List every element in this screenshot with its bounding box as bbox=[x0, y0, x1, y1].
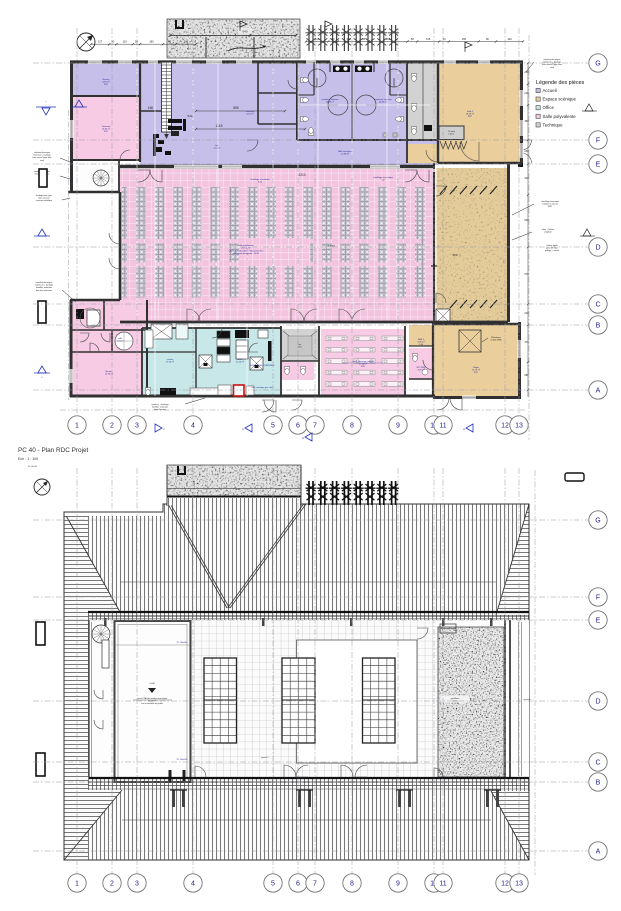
svg-text:6: 6 bbox=[296, 422, 300, 429]
svg-text:Technique: Technique bbox=[543, 122, 564, 127]
svg-text:140: 140 bbox=[507, 37, 512, 41]
svg-text:PC 40 - Plan RDC Projet: PC 40 - Plan RDC Projet bbox=[18, 447, 89, 454]
svg-text:C: C bbox=[595, 759, 600, 766]
svg-text:115: 115 bbox=[123, 40, 128, 44]
svg-text:+6.80: +6.80 bbox=[149, 683, 155, 685]
svg-text:26.35 m²: 26.35 m² bbox=[466, 113, 475, 116]
svg-text:extérieure + bardage: extérieure + bardage bbox=[33, 154, 51, 157]
svg-text:520: 520 bbox=[524, 219, 529, 222]
svg-text:D: D bbox=[595, 698, 600, 705]
svg-text:640: 640 bbox=[187, 114, 192, 118]
svg-text:mobile PMR: mobile PMR bbox=[491, 340, 502, 342]
svg-text:Accueil: Accueil bbox=[543, 88, 557, 93]
svg-text:115: 115 bbox=[426, 37, 431, 41]
svg-text:affect. max du public : 325 pe: affect. max du public : 325 personnes bbox=[229, 249, 264, 252]
svg-text:8: 8 bbox=[350, 880, 354, 887]
svg-text:C: C bbox=[595, 301, 600, 308]
svg-text:A: A bbox=[596, 387, 601, 394]
svg-text:280: 280 bbox=[524, 374, 529, 377]
svg-text:lamelles verticales: lamelles verticales bbox=[36, 286, 52, 289]
svg-text:salle polyvalente: salle polyvalente bbox=[238, 244, 254, 247]
svg-text:bardage bois (type: bardage bois (type bbox=[36, 194, 52, 197]
svg-text:PL 140x140: PL 140x140 bbox=[177, 759, 188, 761]
svg-text:2: 2 bbox=[110, 422, 114, 429]
svg-text:bois des montants: bois des montants bbox=[36, 289, 52, 292]
svg-text:210: 210 bbox=[524, 71, 529, 74]
svg-text:11: 11 bbox=[439, 880, 446, 887]
svg-text:1: 1 bbox=[75, 422, 79, 429]
svg-text:isolation thermique: isolation thermique bbox=[544, 58, 562, 61]
svg-text:ossature + bardage: ossature + bardage bbox=[151, 403, 169, 406]
svg-text:3.70 m²: 3.70 m² bbox=[417, 369, 424, 372]
svg-text:extérieure + bardage: extérieure + bardage bbox=[35, 284, 54, 287]
svg-text:6: 6 bbox=[296, 880, 300, 887]
svg-text:tech.: tech. bbox=[298, 346, 303, 349]
svg-text:202: 202 bbox=[386, 37, 391, 41]
svg-text:SAS 1: SAS 1 bbox=[418, 338, 425, 341]
svg-text:4: 4 bbox=[191, 422, 195, 429]
svg-text:ossature métallique: ossature métallique bbox=[36, 199, 52, 202]
svg-text:E: E bbox=[596, 161, 601, 168]
svg-text:155: 155 bbox=[462, 37, 467, 41]
svg-text:210: 210 bbox=[524, 312, 529, 315]
svg-text:13: 13 bbox=[515, 422, 523, 429]
svg-text:sanitaires femmes: sanitaires femmes bbox=[322, 98, 339, 101]
svg-text:isolation thermique: isolation thermique bbox=[36, 281, 54, 284]
svg-text:115: 115 bbox=[315, 37, 320, 41]
svg-text:PVC: PVC bbox=[104, 84, 109, 86]
svg-text:VMC: VMC bbox=[548, 206, 553, 208]
svg-text:PVC: PVC bbox=[361, 366, 366, 368]
svg-text:1: 1 bbox=[75, 880, 79, 887]
svg-text:3: 3 bbox=[135, 880, 139, 887]
svg-text:radiateur | volume: radiateur | volume bbox=[542, 203, 559, 206]
svg-text:5: 5 bbox=[271, 880, 275, 887]
svg-text:2213: 2213 bbox=[298, 173, 305, 177]
svg-text:17.90 m²: 17.90 m² bbox=[166, 361, 175, 364]
svg-text:5: 5 bbox=[271, 422, 275, 429]
svg-text:D: D bbox=[595, 244, 600, 251]
svg-text:14.80 m²: 14.80 m² bbox=[326, 101, 335, 104]
svg-text:11: 11 bbox=[439, 422, 446, 429]
svg-text:TS noire: TS noire bbox=[448, 130, 455, 133]
svg-text:1115: 1115 bbox=[215, 124, 222, 128]
svg-text:4: 4 bbox=[191, 880, 195, 887]
svg-text:4.10 m²: 4.10 m² bbox=[246, 113, 253, 116]
svg-text:7: 7 bbox=[313, 880, 317, 887]
svg-text:11.20 m²: 11.20 m² bbox=[236, 361, 244, 364]
svg-text:pente 1: pente 1 bbox=[261, 756, 269, 759]
svg-text:160: 160 bbox=[148, 106, 154, 110]
svg-text:acrotère: acrotère bbox=[523, 698, 531, 701]
svg-text:310: 310 bbox=[524, 177, 529, 180]
svg-text:21-05-04: 21-05-04 bbox=[28, 466, 38, 468]
svg-text:210: 210 bbox=[524, 92, 529, 95]
svg-text:voir: voir bbox=[381, 179, 385, 182]
svg-text:isolation thermique: isolation thermique bbox=[34, 151, 50, 154]
svg-text:240: 240 bbox=[524, 150, 529, 153]
svg-text:bois vertical (type bois: bois vertical (type bois bbox=[542, 63, 562, 66]
svg-text:G: G bbox=[595, 517, 600, 524]
svg-text:640: 640 bbox=[242, 30, 247, 34]
svg-text:350: 350 bbox=[524, 120, 529, 123]
svg-text:réunion: réunion bbox=[117, 341, 124, 343]
svg-text:A: A bbox=[302, 436, 304, 440]
svg-text:haut: haut bbox=[258, 181, 262, 184]
svg-text:Ech : 1 : 100: Ech : 1 : 100 bbox=[18, 457, 38, 461]
svg-text:°: ° bbox=[45, 100, 46, 104]
svg-text:sanitaires hommes: sanitaires hommes bbox=[374, 98, 391, 101]
svg-text:non accessible au public: non accessible au public bbox=[141, 703, 163, 705]
svg-text:14.80 m²: 14.80 m² bbox=[379, 101, 388, 104]
svg-text:B: B bbox=[596, 779, 601, 786]
svg-text:127: 127 bbox=[98, 40, 103, 44]
svg-text:vina): vina) bbox=[40, 160, 44, 162]
svg-text:895: 895 bbox=[233, 106, 239, 110]
svg-text:570: 570 bbox=[524, 273, 529, 276]
svg-text:4.60 m²: 4.60 m² bbox=[102, 81, 109, 84]
svg-text:8: 8 bbox=[350, 422, 354, 429]
svg-text:talus + finition: talus + finition bbox=[542, 228, 554, 231]
svg-text:A: A bbox=[596, 848, 601, 855]
svg-text:Légende des pièces: Légende des pièces bbox=[536, 80, 585, 86]
svg-text:végétale: végétale bbox=[544, 231, 552, 234]
svg-text:Tisanerie: Tisanerie bbox=[102, 125, 111, 128]
svg-text:accueil: accueil bbox=[214, 148, 221, 150]
svg-text:PVC: PVC bbox=[104, 131, 109, 133]
svg-text:11.80 m²: 11.80 m² bbox=[341, 153, 349, 156]
svg-text:160: 160 bbox=[149, 40, 154, 44]
svg-text:12: 12 bbox=[501, 422, 509, 429]
svg-text:chauffage thermique: chauffage thermique bbox=[541, 200, 560, 203]
svg-text:bois (épicéa): bois (épicéa) bbox=[154, 409, 166, 411]
svg-text:F: F bbox=[596, 137, 600, 144]
svg-text:vitrif+pare-banderole : CF1h: vitrif+pare-banderole : CF1h bbox=[233, 252, 260, 255]
svg-text:10.40 m²: 10.40 m² bbox=[102, 128, 111, 131]
svg-text:9: 9 bbox=[396, 880, 400, 887]
svg-text:bois vertical (type bois: bois vertical (type bois bbox=[33, 156, 52, 159]
svg-text:7: 7 bbox=[313, 422, 317, 429]
svg-text:27.55 m²: 27.55 m² bbox=[472, 369, 481, 372]
svg-text:Local stockage mobilier: Local stockage mobilier bbox=[352, 360, 374, 363]
svg-text:3.45 m²: 3.45 m² bbox=[417, 341, 424, 344]
svg-text:F: F bbox=[596, 594, 600, 601]
svg-text:Plateforme: Plateforme bbox=[491, 336, 502, 339]
svg-text:PL 140x140: PL 140x140 bbox=[177, 642, 188, 644]
svg-text:PVC: PVC bbox=[474, 372, 479, 374]
svg-text:Espace scénique: Espace scénique bbox=[543, 97, 577, 102]
svg-text:Local CTA toile tendue acousti: Local CTA toile tendue acoustique bbox=[137, 697, 168, 700]
svg-text:140: 140 bbox=[184, 40, 189, 44]
svg-text:2: 2 bbox=[110, 880, 114, 887]
svg-text:Office: Office bbox=[543, 105, 555, 110]
svg-text:110: 110 bbox=[346, 37, 351, 41]
svg-text:3.20 m²: 3.20 m² bbox=[448, 133, 455, 136]
svg-text:PVC: PVC bbox=[468, 116, 473, 118]
svg-text:vina): vina) bbox=[550, 67, 555, 69]
svg-text:sol : carrelage gris clair: sol : carrelage gris clair bbox=[251, 386, 273, 389]
svg-text:clôture rigide: clôture rigide bbox=[546, 244, 558, 247]
svg-text:chauffage acoustique: chauffage acoustique bbox=[250, 178, 271, 181]
svg-text:lamelles verticales: lamelles verticales bbox=[152, 406, 168, 409]
svg-text:370: 370 bbox=[524, 341, 529, 344]
svg-text:Salle polyvalente: Salle polyvalente bbox=[543, 114, 577, 119]
svg-text:bois vina) sur: bois vina) sur bbox=[38, 197, 50, 200]
svg-text:500: 500 bbox=[452, 253, 457, 257]
svg-text:VOIR DETAILS REPERES: VOIR DETAILS REPERES bbox=[250, 364, 275, 367]
svg-text:E: E bbox=[596, 617, 601, 624]
svg-text:3: 3 bbox=[135, 422, 139, 429]
svg-text:B: B bbox=[596, 322, 601, 329]
svg-text:grillage + volant: grillage + volant bbox=[545, 249, 560, 252]
svg-text:chauffage acoustique: chauffage acoustique bbox=[373, 176, 394, 179]
svg-text:entretien: entretien bbox=[246, 110, 255, 113]
svg-text:9: 9 bbox=[396, 422, 400, 429]
svg-text:13: 13 bbox=[515, 880, 523, 887]
svg-text:12: 12 bbox=[501, 880, 509, 887]
svg-text:SAS sanitaires: SAS sanitaires bbox=[338, 150, 352, 153]
svg-text:G: G bbox=[595, 60, 600, 67]
svg-text:Bureau: Bureau bbox=[103, 78, 111, 81]
